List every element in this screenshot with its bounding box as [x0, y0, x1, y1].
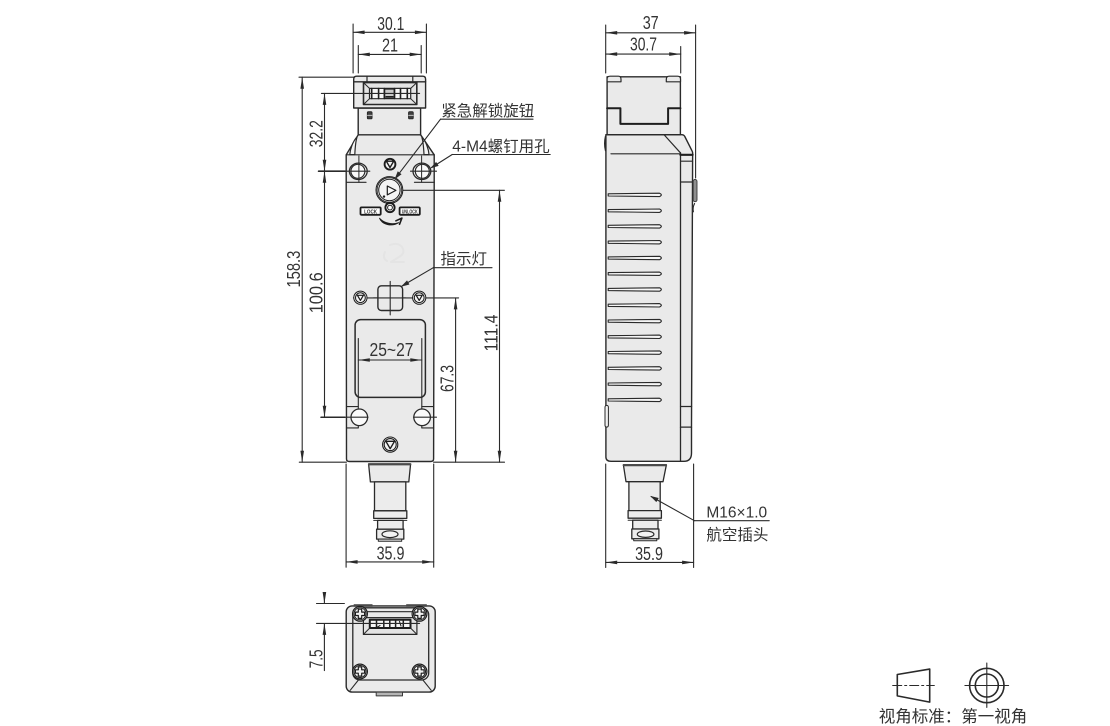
svg-text:航空插头: 航空插头 — [706, 526, 768, 544]
svg-text:指示灯: 指示灯 — [441, 250, 488, 268]
svg-text:30.1: 30.1 — [377, 14, 404, 34]
svg-text:25~27: 25~27 — [370, 340, 414, 360]
svg-text:紧急解锁旋钮: 紧急解锁旋钮 — [441, 102, 534, 120]
svg-text:158.3: 158.3 — [284, 251, 304, 288]
svg-text:LOCK: LOCK — [364, 210, 377, 216]
svg-text:35.9: 35.9 — [377, 544, 405, 564]
svg-text:7.5: 7.5 — [307, 649, 327, 668]
svg-text:35.9: 35.9 — [635, 544, 663, 564]
svg-text:21: 21 — [382, 36, 398, 56]
svg-text:M16×1.0: M16×1.0 — [706, 505, 767, 522]
svg-text:100.6: 100.6 — [306, 272, 326, 313]
svg-text:UNLOCK: UNLOCK — [402, 210, 418, 216]
svg-text:32.2: 32.2 — [306, 120, 326, 147]
svg-text:30.7: 30.7 — [630, 35, 657, 55]
svg-text:4-M4螺钉用孔: 4-M4螺钉用孔 — [452, 137, 550, 155]
svg-text:67.3: 67.3 — [438, 365, 458, 392]
svg-text:视角标准：第一视角: 视角标准：第一视角 — [879, 707, 1028, 726]
svg-text:37: 37 — [643, 13, 659, 33]
svg-text:111.4: 111.4 — [481, 315, 501, 352]
